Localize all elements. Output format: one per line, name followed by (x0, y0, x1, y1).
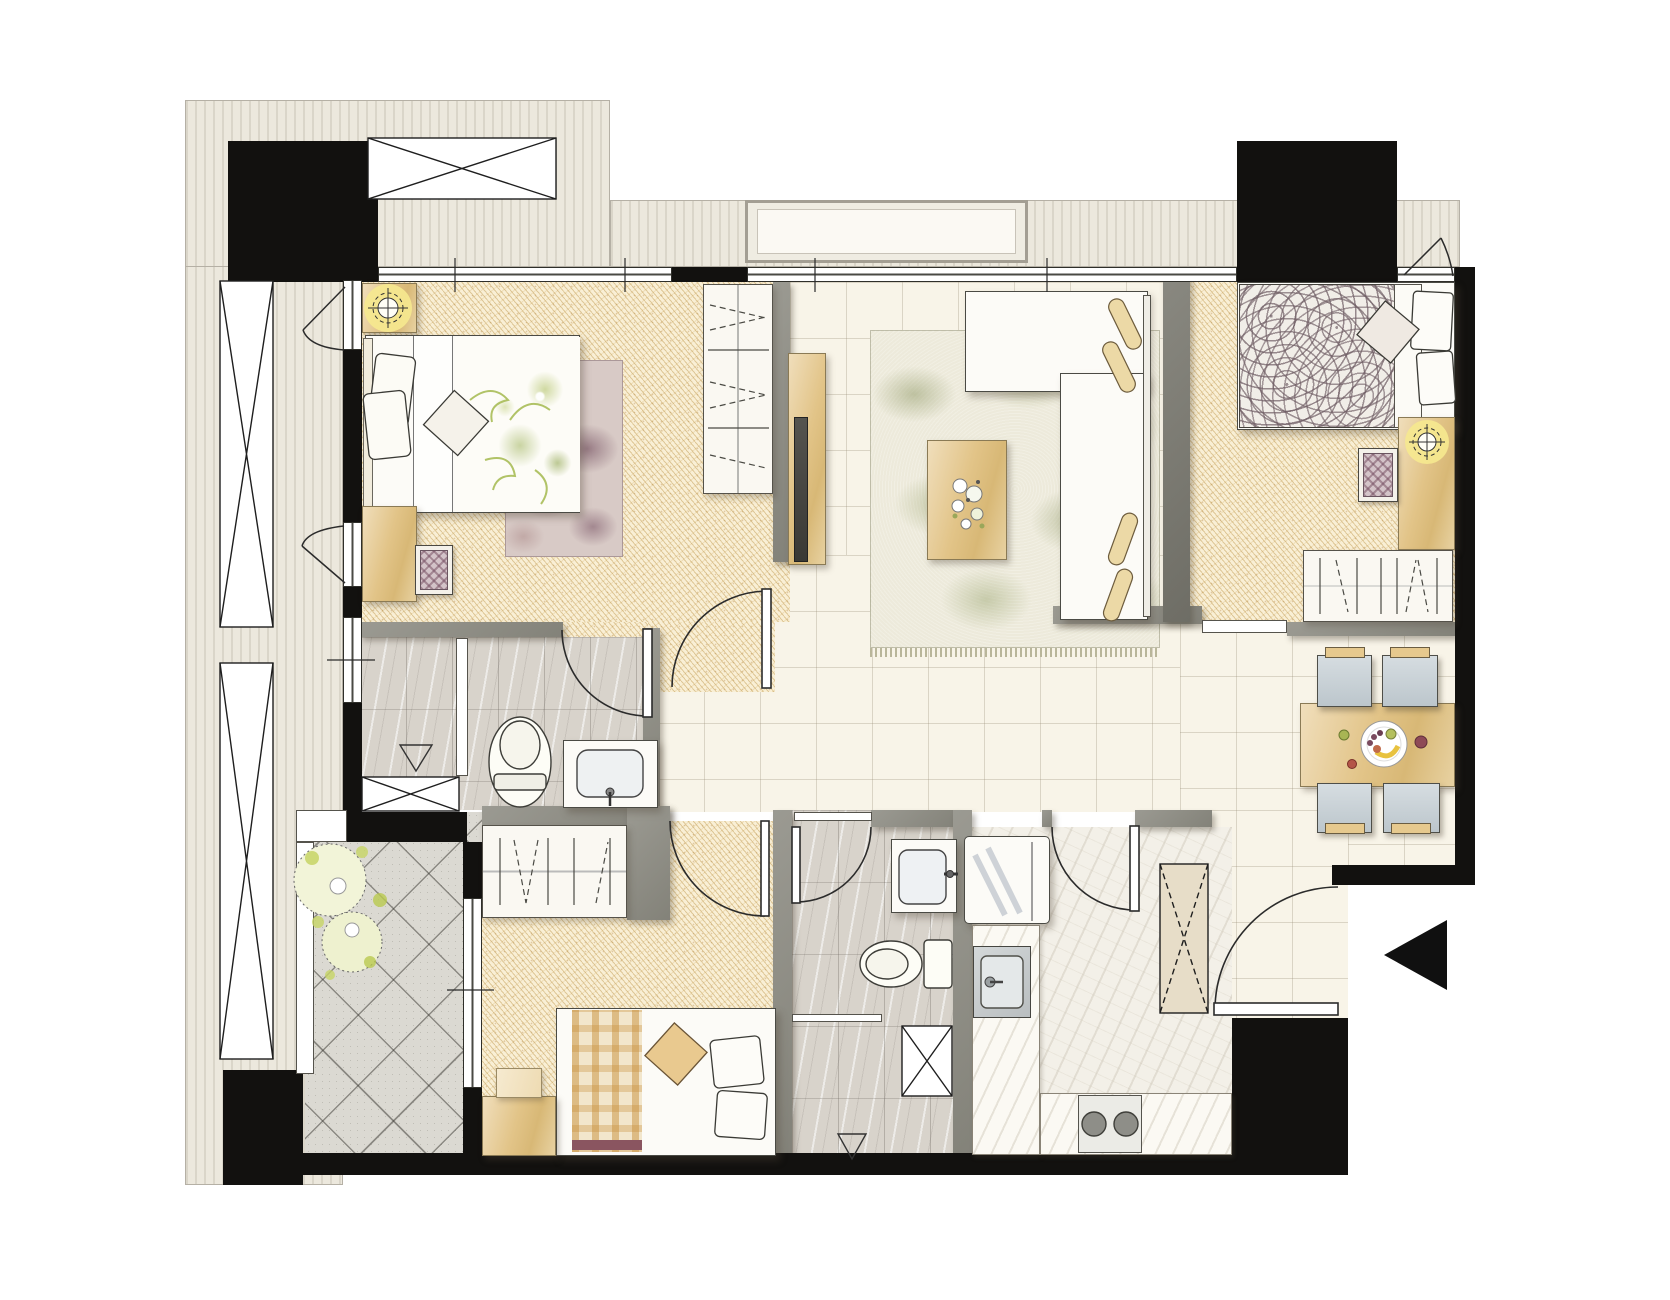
potted-plant (294, 844, 387, 980)
door-leaf-entry (1214, 1003, 1338, 1015)
fruit-plate (1339, 721, 1427, 769)
door-leaf-bathroom2 (792, 827, 800, 903)
toilet-bathroom1 (489, 717, 551, 807)
floor-drain-bathroom2 (838, 1134, 866, 1159)
entry-direction-arrow (1384, 920, 1447, 990)
ceiling-light-bedroom1 (364, 284, 412, 332)
door-arc-bedroom3 (670, 821, 765, 916)
pillows-bedroom2 (1357, 291, 1456, 405)
wardrobe-details-bedroom2 (1320, 558, 1437, 614)
toilet-bathroom2 (860, 940, 952, 988)
cooktop-burners (1082, 1112, 1138, 1136)
pillows-bedroom3 (645, 1023, 768, 1140)
flower-bouquet (952, 479, 985, 529)
basin-bathroom2 (899, 850, 958, 904)
floor-drain-bathroom1 (400, 745, 432, 771)
door-leaf-kitchen (1130, 826, 1139, 911)
door-arc-bathroom2 (796, 827, 871, 902)
basin-bathroom1 (577, 750, 643, 806)
plan-lineart-overlay (0, 0, 1670, 1300)
casement-west-2 (302, 526, 345, 583)
casement-north-east (1404, 238, 1453, 276)
door-arc-kitchen (1052, 827, 1135, 910)
pillows-bedroom1 (363, 353, 489, 460)
door-leaf-bathroom1 (643, 629, 652, 717)
door-arc-bedroom1 (672, 591, 768, 687)
door-arc-entry (1215, 887, 1338, 1010)
apartment-floor-plan (0, 0, 1670, 1300)
ceiling-light-bedroom2 (1405, 420, 1449, 464)
door-arc-bathroom1 (562, 630, 648, 716)
door-leaf-bedroom1 (762, 589, 771, 688)
wardrobe-details-bedroom1 (708, 305, 769, 468)
door-leaf-bedroom3 (761, 821, 769, 916)
casement-west-1 (303, 287, 345, 350)
basin-kitchen (981, 956, 1023, 1008)
wardrobe-details-bedroom3 (500, 838, 610, 905)
duvet-floral-curls (470, 391, 550, 504)
sofa-bolsters (1100, 296, 1144, 623)
refrigerator-shine (975, 842, 1032, 921)
